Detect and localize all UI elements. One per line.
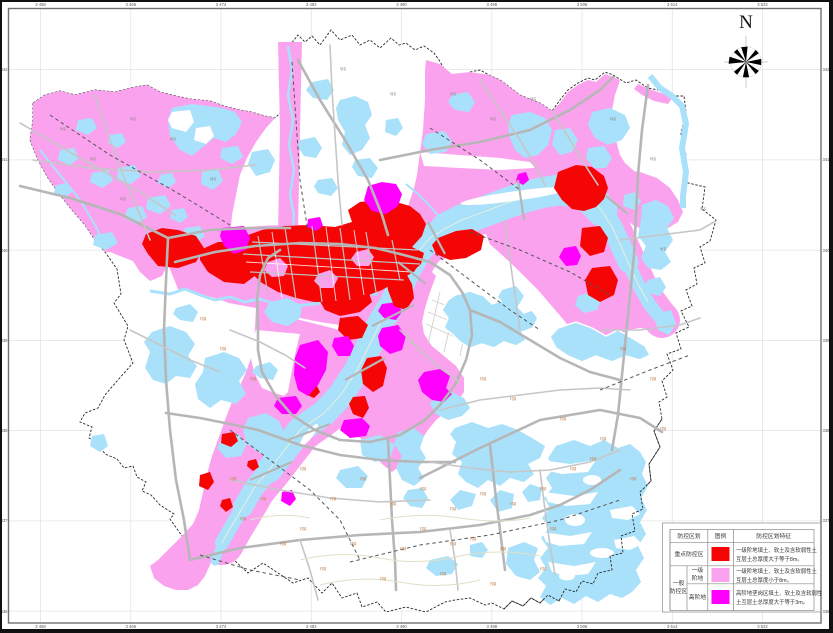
svg-text:3 490: 3 490 <box>396 624 407 629</box>
svg-text:村镇: 村镇 <box>490 581 497 586</box>
svg-text:地名: 地名 <box>490 116 496 121</box>
svg-text:地名: 地名 <box>210 176 216 181</box>
svg-text:村镇: 村镇 <box>660 426 667 431</box>
svg-text:村镇: 村镇 <box>650 376 657 381</box>
svg-text:村镇: 村镇 <box>200 316 207 321</box>
svg-text:3 466: 3 466 <box>126 2 137 7</box>
svg-text:村镇: 村镇 <box>420 526 427 531</box>
svg-text:3 490: 3 490 <box>396 2 407 7</box>
svg-text:3 458: 3 458 <box>35 2 46 7</box>
svg-text:阶地: 阶地 <box>692 574 704 582</box>
svg-text:村镇: 村镇 <box>570 466 577 471</box>
svg-text:3 474: 3 474 <box>216 2 227 7</box>
svg-text:村镇: 村镇 <box>420 486 427 491</box>
svg-text:村镇: 村镇 <box>450 506 457 511</box>
svg-text:村镇: 村镇 <box>620 346 627 351</box>
svg-text:地名: 地名 <box>340 66 346 71</box>
svg-text:一级: 一级 <box>692 566 704 574</box>
svg-text:一级阶地填土、软土及含软弱性土: 一级阶地填土、软土及含软弱性土 <box>736 567 817 575</box>
svg-text:村镇: 村镇 <box>360 476 367 481</box>
svg-text:村镇: 村镇 <box>510 501 517 506</box>
svg-text:地名: 地名 <box>120 196 126 201</box>
svg-text:一般: 一般 <box>673 579 685 587</box>
svg-text:互层土总厚度小于8m。: 互层土总厚度小于8m。 <box>736 576 792 584</box>
svg-text:村镇: 村镇 <box>300 526 307 531</box>
svg-text:3 482: 3 482 <box>306 624 317 629</box>
svg-text:村镇: 村镇 <box>300 466 307 471</box>
svg-text:防控区划特征: 防控区划特征 <box>756 532 791 540</box>
svg-text:村镇: 村镇 <box>550 526 557 531</box>
svg-text:防控区: 防控区 <box>670 587 688 595</box>
svg-text:村镇: 村镇 <box>590 456 597 461</box>
svg-text:3 458: 3 458 <box>35 624 46 629</box>
svg-text:重点防控区: 重点防控区 <box>675 550 704 558</box>
svg-text:图例: 图例 <box>715 532 727 540</box>
svg-text:互层土总厚度大于等于8m。: 互层土总厚度大于等于8m。 <box>736 555 803 563</box>
svg-text:3 514: 3 514 <box>667 624 678 629</box>
svg-text:3 514: 3 514 <box>667 2 678 7</box>
svg-text:村镇: 村镇 <box>350 541 357 546</box>
svg-text:3 466: 3 466 <box>126 624 137 629</box>
svg-text:地名: 地名 <box>90 156 96 161</box>
svg-text:3 482: 3 482 <box>306 2 317 7</box>
svg-text:村镇: 村镇 <box>280 541 287 546</box>
svg-text:地名: 地名 <box>700 206 706 211</box>
svg-text:地名: 地名 <box>130 116 136 121</box>
svg-text:高阶地: 高阶地 <box>689 593 707 601</box>
svg-text:村镇: 村镇 <box>250 376 257 381</box>
svg-text:村镇: 村镇 <box>480 376 487 381</box>
svg-text:3 506: 3 506 <box>577 2 588 7</box>
svg-text:地名: 地名 <box>660 246 666 251</box>
svg-text:村镇: 村镇 <box>240 516 247 521</box>
svg-text:村镇: 村镇 <box>600 436 607 441</box>
svg-text:村镇: 村镇 <box>380 576 387 581</box>
svg-text:村镇: 村镇 <box>400 546 407 551</box>
svg-text:村镇: 村镇 <box>540 566 547 571</box>
svg-text:村镇: 村镇 <box>500 546 507 551</box>
svg-text:村镇: 村镇 <box>630 476 637 481</box>
svg-text:地名: 地名 <box>390 91 396 96</box>
svg-text:村镇: 村镇 <box>330 496 337 501</box>
svg-text:3 498: 3 498 <box>487 624 498 629</box>
svg-text:村镇: 村镇 <box>510 396 517 401</box>
svg-text:村镇: 村镇 <box>480 491 487 496</box>
svg-text:村镇: 村镇 <box>440 571 447 576</box>
svg-text:地名: 地名 <box>530 96 536 101</box>
svg-text:地名: 地名 <box>650 156 656 161</box>
svg-text:3 498: 3 498 <box>487 2 498 7</box>
svg-text:村镇: 村镇 <box>260 496 267 501</box>
svg-text:地名: 地名 <box>450 91 456 96</box>
svg-text:一级阶地填土、软土及含软弱性土: 一级阶地填土、软土及含软弱性土 <box>736 546 817 554</box>
svg-text:地名: 地名 <box>170 136 176 141</box>
svg-text:村镇: 村镇 <box>390 501 397 506</box>
svg-text:3 522: 3 522 <box>757 624 768 629</box>
svg-text:防控区划: 防控区划 <box>677 532 700 540</box>
svg-text:村镇: 村镇 <box>560 416 567 421</box>
svg-text:3 522: 3 522 <box>757 2 768 7</box>
svg-text:村镇: 村镇 <box>220 346 227 351</box>
svg-text:地名: 地名 <box>60 126 66 131</box>
svg-text:高阶地垄岗区填土、软土及含软弱性: 高阶地垄岗区填土、软土及含软弱性 <box>736 589 823 597</box>
svg-text:3 474: 3 474 <box>216 624 227 629</box>
svg-text:村镇: 村镇 <box>320 566 327 571</box>
svg-text:村镇: 村镇 <box>540 486 547 491</box>
svg-text:地名: 地名 <box>610 116 616 121</box>
svg-text:村镇: 村镇 <box>230 476 237 481</box>
svg-text:N: N <box>739 12 753 33</box>
svg-text:土互层土总厚度大于等于3m。: 土互层土总厚度大于等于3m。 <box>736 598 808 606</box>
svg-text:3 506: 3 506 <box>577 624 588 629</box>
svg-text:村镇: 村镇 <box>450 541 457 546</box>
svg-text:村镇: 村镇 <box>470 536 477 541</box>
